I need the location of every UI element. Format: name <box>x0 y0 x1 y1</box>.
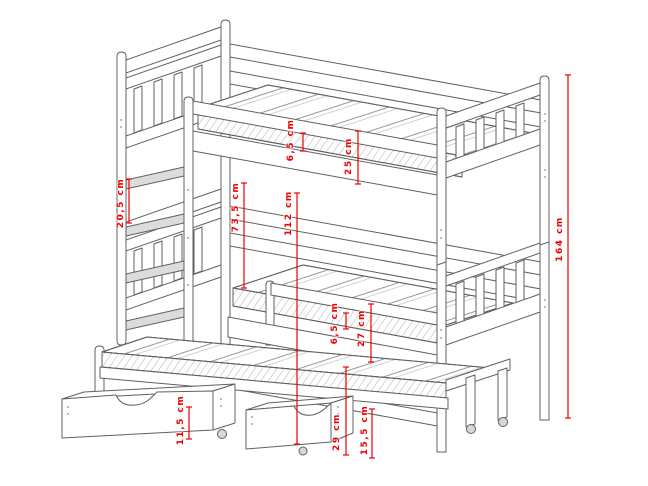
technical-drawing-canvas: 6,5 cm 25 cm 20,5 cm 73,5 cm 112 cm 164 … <box>0 0 648 486</box>
dim-line-total-bed-height <box>565 75 571 418</box>
dim-line-trundle-frame-height <box>369 409 375 458</box>
caster-wheel <box>499 418 508 427</box>
ladder-rung <box>126 308 184 330</box>
trundle-leg <box>498 368 507 420</box>
ladder-rung <box>126 167 184 189</box>
ladder-stringer <box>184 97 193 347</box>
caster-wheel <box>218 430 227 439</box>
caster-wheel <box>299 447 307 455</box>
headboard-bottom-bunk <box>126 189 221 310</box>
post-back-right <box>540 76 549 420</box>
post-back-left <box>221 20 230 364</box>
post-front-left <box>117 52 126 345</box>
storage-drawer-2 <box>246 396 353 455</box>
storage-drawer-1 <box>62 384 235 439</box>
bunk-bed-line-art <box>0 0 648 486</box>
caster-wheel <box>467 425 476 434</box>
trundle-leg <box>466 375 475 427</box>
